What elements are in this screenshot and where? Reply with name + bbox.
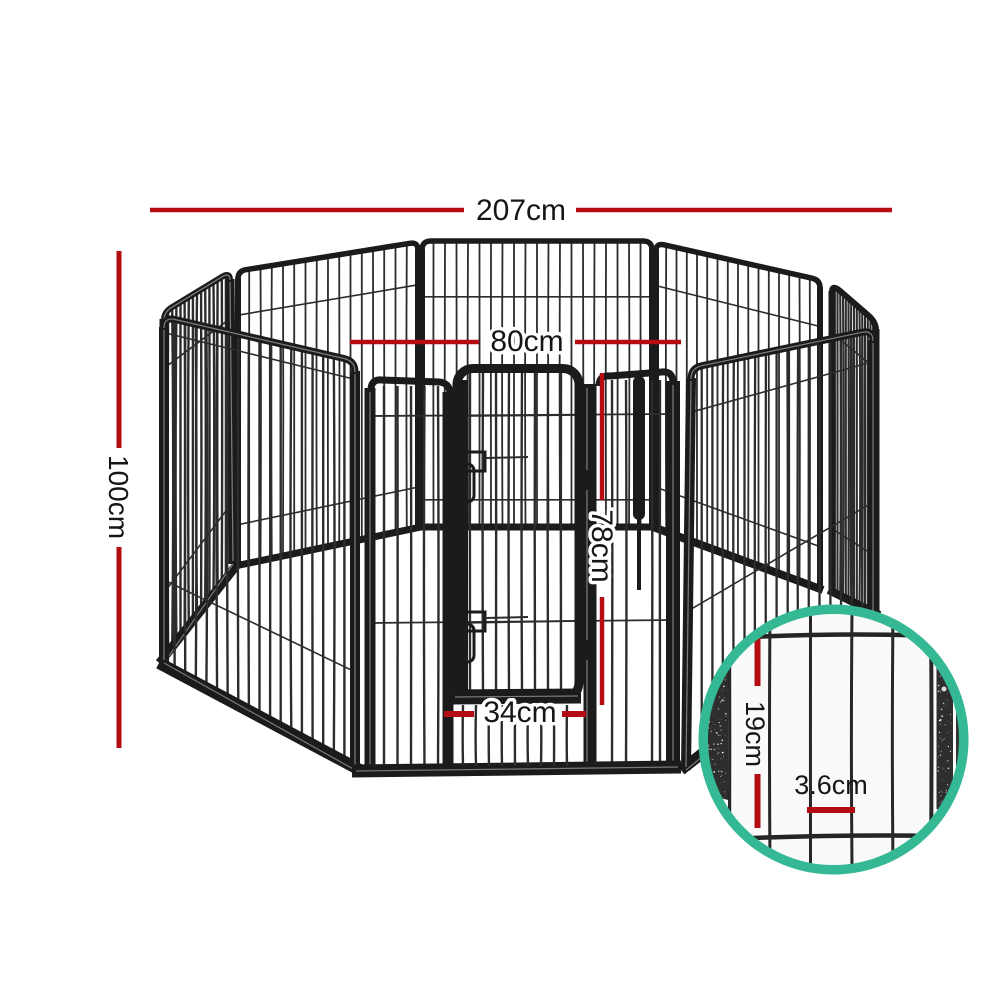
svg-text:19cm: 19cm <box>740 701 770 767</box>
svg-text:34cm: 34cm <box>483 696 556 729</box>
svg-text:78cm: 78cm <box>585 509 618 582</box>
svg-text:207cm: 207cm <box>476 194 566 227</box>
svg-text:100cm: 100cm <box>103 455 134 539</box>
svg-text:80cm: 80cm <box>490 325 563 358</box>
svg-text:3.6cm: 3.6cm <box>794 770 868 800</box>
